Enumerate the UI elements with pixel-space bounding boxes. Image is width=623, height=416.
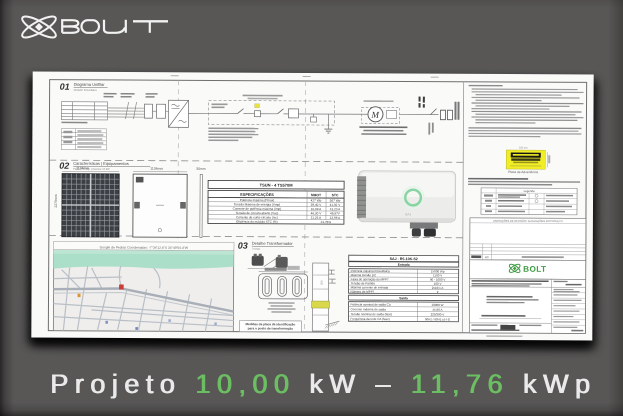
svg-text:TSUN - 4 TS570M: TSUN - 4 TS570M [259, 183, 293, 188]
svg-text:21,76%: 21,76% [320, 220, 331, 224]
svg-text:Detalhe Transformador: Detalhe Transformador [251, 241, 293, 246]
svg-text:0,8 cm: 0,8 cm [519, 146, 528, 150]
svg-text:75 kVA: 75 kVA [251, 247, 259, 251]
svg-text:Número de MPPT: Número de MPPT [350, 290, 374, 294]
svg-text:200: 200 [319, 280, 323, 285]
svg-text:Características | Equipamentos: Características | Equipamentos [73, 161, 129, 166]
svg-text:R0: R0 [485, 255, 489, 259]
svg-text:SAJ: SAJ [405, 212, 412, 216]
svg-text:Legenda: Legenda [523, 189, 534, 193]
svg-text:2: 2 [436, 290, 438, 294]
svg-text:220/380 V: 220/380 V [430, 313, 444, 317]
svg-text:para o posto de transformação: para o posto de transformação [247, 326, 293, 330]
svg-text:02: 02 [59, 161, 69, 171]
svg-text:1134mm: 1134mm [150, 167, 163, 171]
svg-text:Corrente máxima de saída: Corrente máxima de saída [350, 307, 386, 311]
svg-text:Frequência da rede CA (fase): Frequência da rede CA (fase) [350, 317, 389, 321]
svg-text:ESPECIFICAÇÕES: ESPECIFICAÇÕES [240, 192, 274, 197]
svg-text:Placa de Advertência: Placa de Advertência [508, 170, 538, 174]
svg-text:Gerador fotovoltaico: Gerador fotovoltaico [73, 88, 97, 92]
svg-text:Saída: Saída [399, 296, 408, 300]
svg-text:01: 01 [59, 82, 69, 92]
svg-text:Entrada: Entrada [397, 263, 409, 267]
svg-text:2279mm: 2279mm [54, 194, 58, 207]
svg-text:SAJ - R5-10K-S2: SAJ - R5-10K-S2 [389, 257, 417, 261]
svg-text:Tensão nominal de saída (fase): Tensão nominal de saída (fase) [350, 312, 392, 316]
svg-text:50Hz / 60Hz ±5 Hz: 50Hz / 60Hz ±5 Hz [424, 317, 450, 321]
svg-text:STC: STC [331, 193, 338, 197]
svg-text:M: M [370, 110, 379, 120]
svg-text:NMOT: NMOT [311, 193, 322, 197]
svg-text:BOLT: BOLT [523, 265, 546, 274]
svg-text:Eficiência do módulo STC (%): Eficiência do módulo STC (%) [236, 220, 277, 224]
svg-text:10000 W: 10000 W [431, 303, 443, 307]
svg-text:Diagrama Unifilar: Diagrama Unifilar [73, 82, 105, 87]
svg-text:1134mm: 1134mm [76, 166, 89, 170]
svg-text:45,96 A: 45,96 A [432, 308, 442, 312]
svg-text:03: 03 [237, 241, 247, 251]
svg-text:Potência nominal de saída CA: Potência nominal de saída CA [350, 303, 390, 307]
svg-text:Google de Pedras Coordenadas:: Google de Pedras Coordenadas: -7°34'12.6… [99, 245, 188, 249]
svg-text:30mm: 30mm [196, 167, 206, 171]
